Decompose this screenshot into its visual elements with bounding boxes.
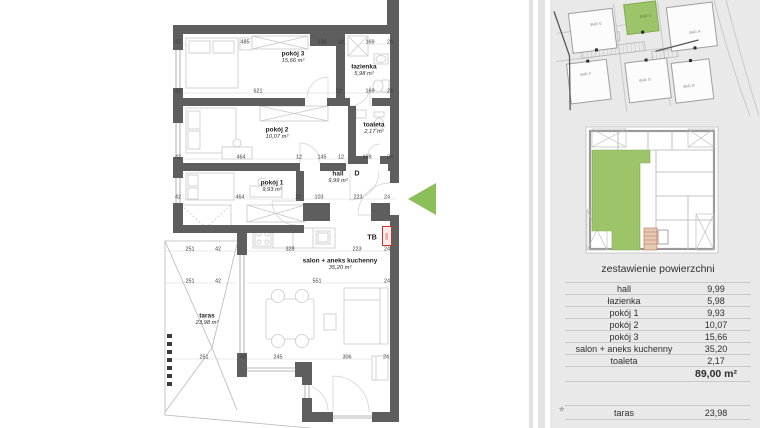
room-area-cell: 15,66 (683, 332, 749, 342)
dimension-label: 169 (365, 88, 374, 94)
dimension-label: 169 (362, 154, 371, 160)
dimension-label: 223 (353, 194, 362, 200)
switchboard-label: TB (367, 233, 377, 241)
room-name-cell: pokój 2 (565, 320, 683, 330)
total-area: 89,00 m² (683, 368, 749, 380)
room-area-cell: 9,93 (683, 308, 749, 318)
dimension-label: 485 (240, 39, 249, 45)
taras-row: taras 23,98 (565, 405, 751, 420)
room-label: salon + aneks kuchenny 35,20 m² (303, 257, 378, 271)
dimension-label: 12 (338, 154, 344, 160)
dimension-label: 24 (387, 39, 393, 45)
dimension-label: 251 (199, 354, 208, 360)
dimension-label: 245 (273, 354, 282, 360)
table-title: zestawienie powierzchni (565, 263, 751, 275)
area-summary-table: zestawienie powierzchni hall 9,99 łazien… (565, 263, 751, 420)
room-name-cell: toaleta (565, 356, 683, 366)
room-name-cell: salon + aneks kuchenny (565, 344, 683, 354)
building-a (666, 2, 717, 51)
dimension-label: 42 (240, 354, 246, 360)
main-floor-plan (165, 0, 436, 428)
terrace-edge-dashes (167, 334, 172, 386)
room-name-cell: pokój 1 (565, 308, 683, 318)
taras-area-cell: 23,98 (683, 408, 749, 418)
room-label: taras 23,98 m² (196, 312, 219, 326)
building-b (671, 59, 714, 103)
table-row: salon + aneks kuchenny 35,20 (565, 343, 751, 355)
room-label: toaleta 2,17 m² (364, 121, 385, 135)
building-f (567, 59, 612, 104)
dimension-label: 42 (175, 39, 181, 45)
room-name-cell: pokój 3 (565, 332, 683, 342)
dimension-label: 24 (387, 88, 393, 94)
room-name-cell: hall (565, 284, 683, 294)
dimension-label: 12 (338, 39, 344, 45)
dimension-label: 464 (236, 154, 245, 160)
table-row: pokój 3 15,66 (565, 331, 751, 343)
dimension-label: 145 (317, 154, 326, 160)
dimension-label: 12 (295, 194, 301, 200)
building-e (568, 8, 617, 53)
room-area-cell: 9,99 (683, 284, 749, 294)
room-label: łazienka 5,98 m² (351, 63, 376, 77)
table-row: pokój 2 10,07 (565, 319, 751, 331)
room-name-cell: łazienka (565, 296, 683, 306)
room-area-cell: 5,98 (683, 296, 749, 306)
dimension-label: 24 (387, 154, 393, 160)
room-label: hall 9,99 m² (328, 170, 348, 184)
room-area-cell: 10,07 (683, 320, 749, 330)
room-label: pokój 2 10,07 m² (266, 126, 289, 140)
dimension-label: 42 (215, 278, 221, 284)
dimension-label: 12 (336, 88, 342, 94)
dimension-label: 24 (384, 194, 390, 200)
room-label: pokój 3 15,66 m² (282, 50, 305, 64)
street-curves (714, 0, 759, 116)
mini-floor-plan (586, 127, 718, 253)
taras-name-cell: taras (565, 408, 683, 418)
table-rows: hall 9,99 łazienka 5,98 pokój 1 9,93 pok… (565, 282, 751, 382)
room-area-cell: 2,17 (683, 356, 749, 366)
meter-box-icon: eco (382, 226, 392, 246)
dimension-label: 42 (175, 88, 181, 94)
dimension-label: 551 (312, 278, 321, 284)
entrance-arrow-icon (408, 183, 436, 215)
entrance-door-label: D (354, 169, 359, 177)
staircase (644, 228, 657, 250)
dimension-label: 42 (215, 246, 221, 252)
dimension-label: 223 (352, 246, 361, 252)
site-plan-map (550, 0, 759, 119)
dimension-label: 136 (317, 39, 326, 45)
dimension-label: 169 (365, 39, 374, 45)
dimension-label: 621 (253, 88, 262, 94)
dimension-label: 42 (175, 194, 181, 200)
dimension-label: 328 (285, 246, 294, 252)
dimension-label: 42 (175, 154, 181, 160)
table-row: łazienka 5,98 (565, 295, 751, 307)
footnote-marker: * (559, 403, 564, 419)
dimension-label: 306 (342, 354, 351, 360)
dimension-label: 103 (314, 194, 323, 200)
dimension-label: 251 (185, 278, 194, 284)
dimension-label: 24 (384, 246, 390, 252)
floor-plan-sheet: 4248513612169244262112169244246412145121… (0, 0, 760, 428)
table-row: hall 9,99 (565, 283, 751, 295)
table-row: toaleta 2,17 (565, 355, 751, 367)
room-label: pokój 1 9,93 m² (261, 179, 284, 193)
table-row: pokój 1 9,93 (565, 307, 751, 319)
dimension-label: 12 (296, 154, 302, 160)
furniture (181, 36, 389, 380)
room-area-cell: 35,20 (683, 344, 749, 354)
dimension-label: 24 (383, 354, 389, 360)
total-row: 89,00 m² (565, 367, 751, 382)
dimension-label: 464 (235, 194, 244, 200)
dimension-label: 251 (185, 246, 194, 252)
dimension-label: 24 (384, 278, 390, 284)
meter-box-label: eco (385, 233, 389, 240)
